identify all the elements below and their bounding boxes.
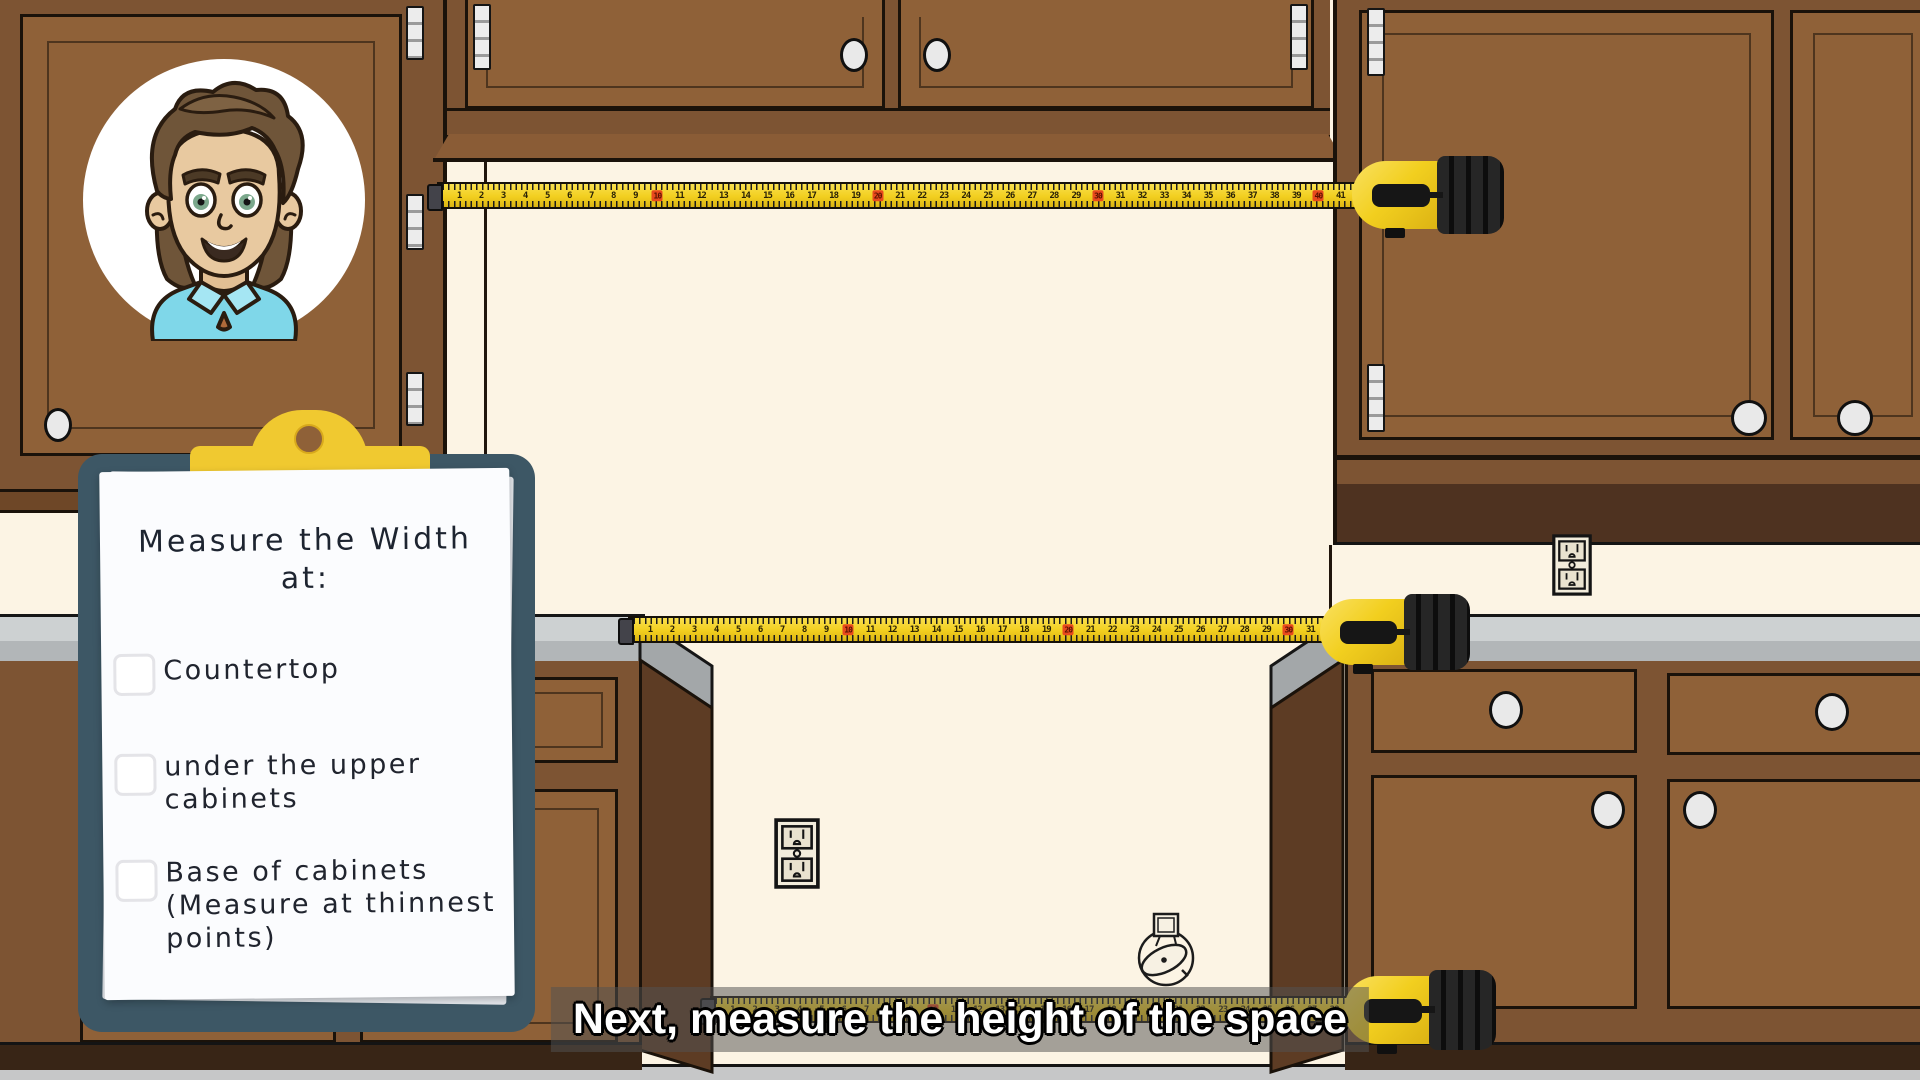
door-knob: [1837, 400, 1873, 436]
tape-number: 21: [1086, 624, 1095, 634]
cabinet-molding: [435, 134, 1342, 158]
tape-number: 14: [932, 624, 941, 634]
checklist-title-line2: at:: [100, 557, 510, 599]
tape-number: 28: [1240, 624, 1249, 634]
tape-number: 27: [1218, 624, 1227, 634]
tape-number: 26: [1196, 624, 1205, 634]
tape-number: 39: [1292, 190, 1301, 200]
caption-text: Next, measure the height of the space: [551, 987, 1369, 1052]
tape-number: 24: [1152, 624, 1161, 634]
tape-number: 24: [961, 190, 970, 200]
tape-number: 17: [807, 190, 816, 200]
tape-number: 13: [910, 624, 919, 634]
tape-number: 11: [866, 624, 875, 634]
tape-body-grip: [1404, 594, 1470, 670]
hinge-icon: [406, 194, 424, 250]
hinge-icon: [1290, 4, 1308, 70]
tape-number: 32: [1138, 190, 1147, 200]
tape-number: 18: [829, 190, 838, 200]
tape-number: 34: [1182, 190, 1191, 200]
power-outlet: [774, 818, 820, 889]
presenter-avatar: [83, 59, 365, 341]
tape-lock-tab: [1377, 1044, 1397, 1054]
hinge-icon: [1367, 364, 1385, 432]
checklist-item: Countertop: [101, 650, 512, 714]
door-knob: [1591, 791, 1625, 829]
tape-number: 41: [1336, 190, 1345, 200]
checklist-item-label: Base of cabinets (Measure at thinnest po…: [165, 854, 498, 956]
tape-measure-body: [1320, 594, 1470, 670]
tape-belt-clip: [1364, 999, 1422, 1023]
door-panel: [919, 17, 1293, 88]
door-knob: [923, 38, 951, 72]
drawer-knob: [1815, 693, 1849, 731]
tape-number: 20: [872, 190, 883, 201]
tape-number: 19: [1042, 624, 1051, 634]
tape-belt-clip: [1340, 621, 1397, 644]
tape-number: 11: [675, 190, 684, 200]
checkbox[interactable]: [115, 860, 157, 902]
tape-number: 12: [697, 190, 706, 200]
tape-number: 22: [1108, 624, 1117, 634]
tape-number: 16: [785, 190, 794, 200]
door-panel: [1813, 33, 1913, 417]
checkbox[interactable]: [113, 654, 155, 696]
drawer-front: [1667, 673, 1920, 755]
toe-kick: [0, 1042, 642, 1070]
tape-number: 25: [983, 190, 992, 200]
drawer-knob: [1489, 691, 1523, 729]
tape-number: 2: [479, 190, 483, 200]
tape-number: 3: [501, 190, 505, 200]
hinge-icon: [473, 4, 491, 70]
tape-number: 29: [1262, 624, 1271, 634]
tape-body-grip: [1429, 970, 1496, 1050]
tape-number: 7: [589, 190, 593, 200]
tape-number: 6: [758, 624, 762, 634]
tape-number: 12: [888, 624, 897, 634]
upper-right-cabinet: [1333, 0, 1920, 545]
hinge-icon: [1367, 8, 1385, 76]
tape-number: 26: [1005, 190, 1014, 200]
tape-number: 22: [917, 190, 926, 200]
tape-number: 5: [736, 624, 740, 634]
tape-number: 33: [1160, 190, 1169, 200]
tape-number: 20: [1063, 624, 1074, 635]
tape-number: 15: [954, 624, 963, 634]
tape-number: 29: [1072, 190, 1081, 200]
checkbox[interactable]: [114, 754, 156, 796]
cabinet-door: [898, 0, 1314, 109]
checklist-title: Measure the Width at:: [100, 520, 511, 599]
tape-number: 3: [692, 624, 696, 634]
door-knob: [44, 408, 72, 442]
tape-number: 1: [648, 624, 652, 634]
tape-number: 7: [780, 624, 784, 634]
tape-measure-body: [1352, 156, 1504, 234]
tape-number: 4: [523, 190, 527, 200]
hinge-icon: [406, 372, 424, 426]
tape-number: 35: [1204, 190, 1213, 200]
tape-number: 38: [1270, 190, 1279, 200]
checklist-item-label: Countertop: [163, 652, 495, 688]
tape-number: 10: [652, 190, 663, 201]
tape-number: 36: [1226, 190, 1235, 200]
measuring-tape-upper: 1234567891011121314151617181920212223242…: [437, 182, 1358, 209]
tape-number: 30: [1283, 624, 1294, 635]
tape-number: 8: [611, 190, 615, 200]
measuring-tape-counter: 1234567891011121314151617181920212223242…: [628, 616, 1328, 643]
molding-edge: [433, 158, 1344, 162]
tape-number: 31: [1306, 624, 1315, 634]
checklist-paper: Measure the Width at: Countertop under t…: [99, 468, 515, 1000]
checklist-item: Base of cabinets (Measure at thinnest po…: [103, 852, 514, 976]
tape-number: 28: [1050, 190, 1059, 200]
tape-number: 18: [1020, 624, 1029, 634]
tape-body-grip: [1437, 156, 1504, 234]
tape-belt-clip: [1372, 184, 1430, 207]
tape-number: 1: [457, 190, 461, 200]
checklist-item: under the upper cabinets: [102, 746, 513, 830]
tape-number: 9: [824, 624, 828, 634]
door-knob: [1683, 791, 1717, 829]
tape-number: 19: [851, 190, 860, 200]
tape-number: 14: [741, 190, 750, 200]
tape-number: 27: [1027, 190, 1036, 200]
door-panel: [486, 17, 864, 88]
checklist-title-line1: Measure the Width: [100, 520, 510, 562]
tape-number: 8: [802, 624, 806, 634]
tape-number: 31: [1116, 190, 1125, 200]
cabinet-soffit: [1333, 484, 1920, 545]
upper-middle-cabinet: [447, 0, 1330, 164]
tape-number: 30: [1093, 190, 1104, 201]
tape-number: 10: [843, 624, 854, 635]
tape-number: 17: [998, 624, 1007, 634]
tape-number: 21: [895, 190, 904, 200]
tape-number: 2: [670, 624, 674, 634]
tape-number: 25: [1174, 624, 1183, 634]
tape-lock-tab: [1385, 228, 1405, 238]
checklist-item-label: under the upper cabinets: [164, 748, 497, 817]
cabinet-rail: [1333, 458, 1920, 486]
tape-number: 4: [714, 624, 718, 634]
tape-number: 23: [939, 190, 948, 200]
tape-number: 37: [1248, 190, 1257, 200]
tape-hook: [618, 618, 634, 645]
tape-number: 23: [1130, 624, 1139, 634]
door-knob: [1731, 400, 1767, 436]
tape-number: 5: [545, 190, 549, 200]
tape-number: 15: [763, 190, 772, 200]
tape-number: 9: [633, 190, 637, 200]
hinge-icon: [406, 6, 424, 60]
power-outlet: [1552, 534, 1592, 596]
fixture-icon: [1130, 910, 1200, 990]
tape-number: 40: [1313, 190, 1324, 201]
clipboard: Measure the Width at: Countertop under t…: [78, 448, 536, 1034]
tape-lock-tab: [1353, 664, 1373, 674]
tape-hook: [427, 184, 443, 211]
tape-number: 16: [976, 624, 985, 634]
kitchen-scene: 1234567891011121314151617181920212223242…: [0, 0, 1920, 1080]
tape-number: 13: [719, 190, 728, 200]
tape-number: 6: [567, 190, 571, 200]
cabinet-door: [465, 0, 885, 109]
clipboard-clip-hole: [294, 424, 324, 454]
cabinet-door: [1790, 10, 1920, 440]
cabinet-rail: [447, 108, 1330, 138]
door-knob: [840, 38, 868, 72]
